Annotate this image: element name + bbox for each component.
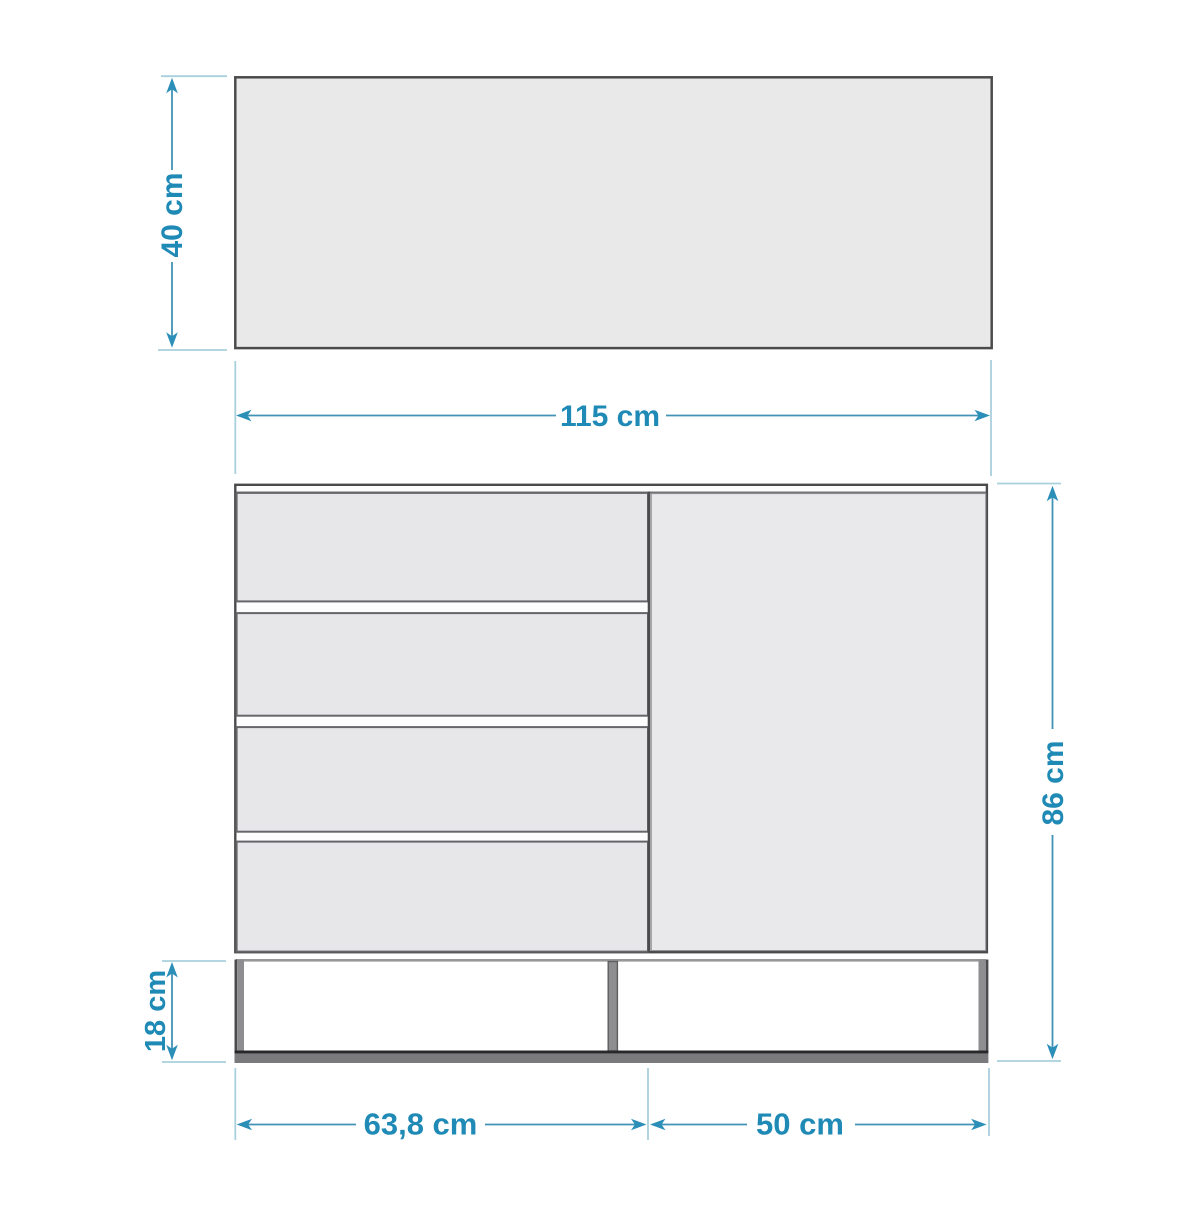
svg-text:40 cm: 40 cm — [156, 172, 189, 257]
svg-text:18 cm: 18 cm — [140, 970, 172, 1052]
svg-text:86 cm: 86 cm — [1037, 740, 1070, 825]
svg-text:115 cm: 115 cm — [560, 400, 660, 433]
svg-text:63,8 cm: 63,8 cm — [364, 1107, 478, 1142]
svg-text:50 cm: 50 cm — [756, 1107, 844, 1142]
